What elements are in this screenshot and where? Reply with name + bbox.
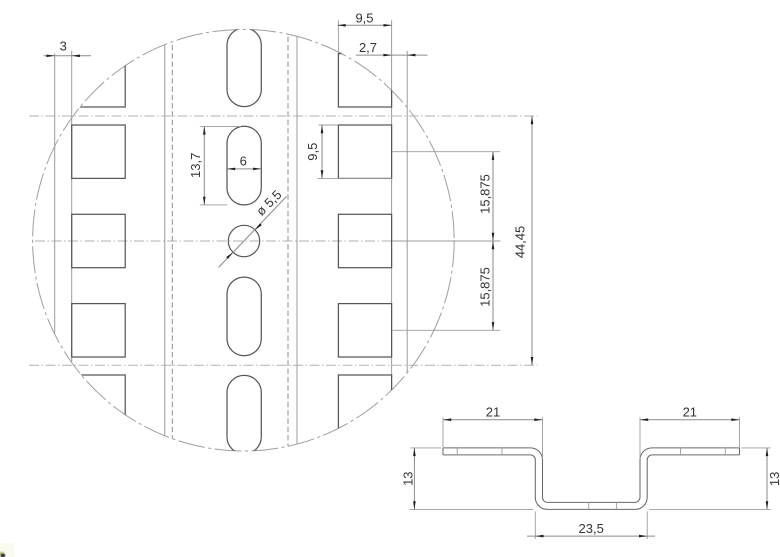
svg-text:13: 13: [401, 471, 416, 485]
svg-text:21: 21: [486, 404, 500, 419]
svg-text:2,7: 2,7: [359, 40, 377, 55]
svg-text:21: 21: [683, 404, 697, 419]
svg-text:3: 3: [60, 39, 67, 54]
svg-text:13: 13: [767, 472, 780, 486]
svg-text:23,5: 23,5: [579, 521, 604, 536]
svg-text:9,5: 9,5: [355, 10, 373, 25]
svg-text:44,45: 44,45: [513, 226, 528, 259]
svg-text:13,7: 13,7: [188, 153, 203, 178]
svg-text:15,875: 15,875: [478, 174, 493, 214]
svg-text:15,875: 15,875: [478, 267, 493, 307]
svg-text:9,5: 9,5: [305, 143, 320, 161]
svg-text:6: 6: [240, 154, 247, 169]
